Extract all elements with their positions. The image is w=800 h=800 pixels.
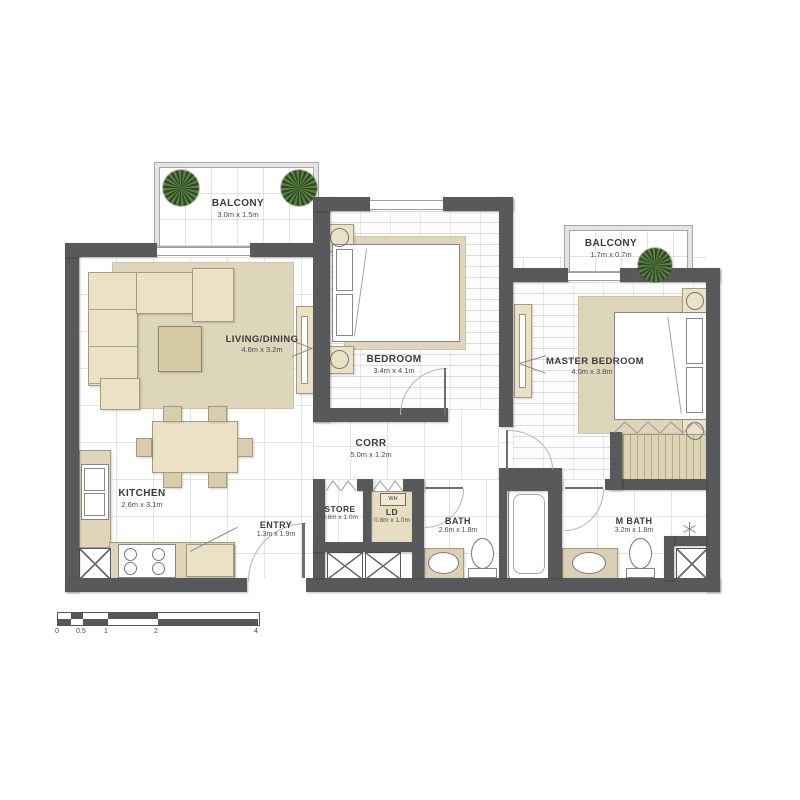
wall-store-bottom xyxy=(313,542,420,552)
wall-master-top-left xyxy=(513,268,568,282)
pillow xyxy=(686,367,703,413)
sink-bowl xyxy=(84,468,105,491)
toilet-tank xyxy=(626,568,655,578)
room-label-balcony-top: BALCONY 3.0m x 1.5m xyxy=(190,198,286,219)
dining-table xyxy=(152,421,238,473)
bath-sink xyxy=(428,552,459,574)
wall-store-top xyxy=(357,479,373,491)
pillow xyxy=(686,318,703,364)
toilet-tank xyxy=(468,568,497,578)
burner xyxy=(124,562,137,575)
scale-tick: 4 xyxy=(254,628,258,635)
ottoman xyxy=(100,378,140,410)
storage-box xyxy=(327,552,363,580)
scale-bar-cells xyxy=(57,612,260,626)
scale-bar: 0 0.5 1 2 4 xyxy=(57,612,258,626)
tv xyxy=(519,314,526,388)
balcony-side-door xyxy=(568,272,620,281)
burner xyxy=(124,548,137,561)
door-leaf-master xyxy=(506,430,508,470)
dining-chair xyxy=(208,472,227,488)
bathtub-inner xyxy=(513,494,545,574)
dining-chair xyxy=(136,438,152,457)
room-label-bath: BATH 2.6m x 1.8m xyxy=(430,516,486,535)
wall-bottom-right xyxy=(306,578,720,592)
storage-box xyxy=(365,552,401,580)
wall-wardrobe-left xyxy=(610,432,622,490)
dining-chair xyxy=(163,406,182,422)
wall-bottom-left xyxy=(65,578,247,592)
bedroom-window xyxy=(370,200,443,210)
room-label-living: LIVING/DINING 4.6m x 3.2m xyxy=(222,334,302,354)
room-label-store: STORE 0.8m x 1.0m xyxy=(314,504,366,522)
wall-bath-mbath xyxy=(548,479,562,578)
floor-drain xyxy=(682,522,696,536)
burner xyxy=(152,562,165,575)
dining-chair xyxy=(208,406,227,422)
mbath-sink xyxy=(572,552,606,574)
burner xyxy=(152,548,165,561)
room-label-balcony-side: BALCONY 1.7m x 0.7m xyxy=(563,238,659,259)
wall-right-outer xyxy=(706,268,720,592)
plant xyxy=(281,170,317,206)
bifold-door xyxy=(373,480,403,491)
bifold-door xyxy=(614,421,706,433)
pillow xyxy=(336,249,353,291)
room-label-master: MASTER BEDROOM 4.0m x 3.8m xyxy=(546,356,638,376)
wall-bedroom-top-left xyxy=(313,197,370,211)
dining-chair xyxy=(237,438,253,457)
water-heater: WH xyxy=(380,493,406,506)
room-label-corridor: CORR 5.0m x 1.2m xyxy=(339,438,403,459)
floor-plan: WH BALCONY 3.0m x 1.5m BALCONY 1.7m x 0.… xyxy=(0,0,800,800)
wall-bedroom-right xyxy=(499,197,513,427)
pillow xyxy=(336,294,353,336)
wall-top-left xyxy=(65,243,157,257)
lamp xyxy=(330,350,349,369)
wardrobe xyxy=(622,434,708,481)
sink-bowl xyxy=(84,493,105,516)
room-label-mbath: M BATH 3.2m x 1.8m xyxy=(604,516,664,535)
shower xyxy=(676,548,708,580)
wall-living-bedroom xyxy=(313,197,330,422)
wall-shower-left xyxy=(664,536,674,580)
service-shaft xyxy=(79,548,111,580)
scale-tick: 1 xyxy=(104,628,108,635)
wall-entry-store xyxy=(313,479,325,578)
sofa-chaise xyxy=(192,268,234,322)
toilet-bowl xyxy=(629,538,652,569)
door-leaf-mbath xyxy=(565,487,603,489)
coffee-table xyxy=(158,326,202,372)
sofa xyxy=(136,272,194,314)
door-leaf-bath xyxy=(425,487,463,489)
wall-top-mid xyxy=(250,243,315,257)
room-label-laundry: LD 0.8m x 1.0m xyxy=(370,507,414,525)
wall-left-outer xyxy=(65,243,79,592)
scale-tick: 0 xyxy=(55,628,59,635)
room-label-kitchen: KITCHEN 2.6m x 3.1m xyxy=(106,488,178,509)
bifold-door xyxy=(326,480,356,491)
wall-bath-tub xyxy=(499,491,507,578)
lamp xyxy=(686,292,704,310)
sofa xyxy=(88,272,138,386)
room-label-bedroom: BEDROOM 3.4m x 4.1m xyxy=(360,354,428,375)
wall-ld-bath xyxy=(412,479,424,578)
door-leaf-bedroom xyxy=(444,368,446,415)
room-label-entry: ENTRY 1.3m x 1.9m xyxy=(245,520,307,539)
balcony-top-door xyxy=(157,247,250,256)
lamp xyxy=(330,228,349,247)
dining-chair xyxy=(163,472,182,488)
scale-tick: 0.5 xyxy=(76,628,86,635)
scale-tick: 2 xyxy=(154,628,158,635)
toilet-bowl xyxy=(471,538,494,569)
